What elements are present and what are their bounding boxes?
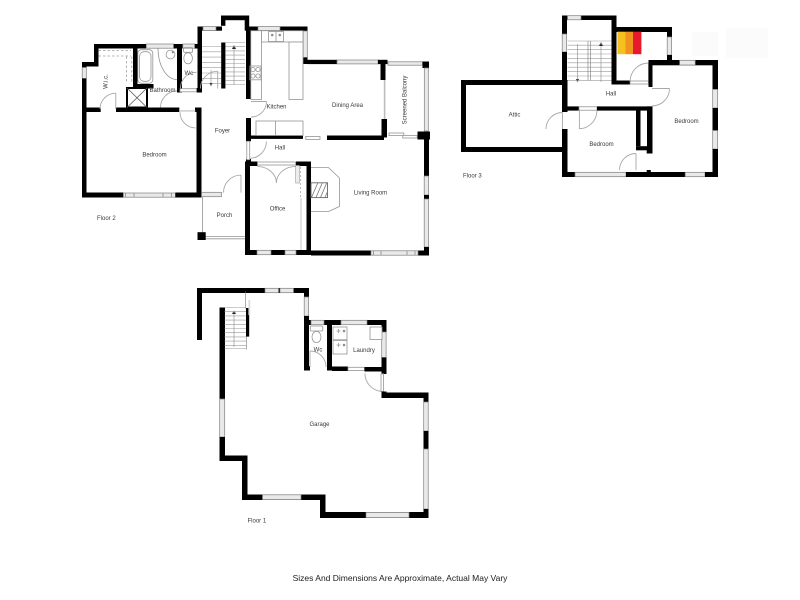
svg-text:Sizes And Dimensions Are Appro: Sizes And Dimensions Are Approximate, Ac… xyxy=(293,573,509,583)
svg-text:Living Room: Living Room xyxy=(354,191,387,197)
svg-text:Floor 2: Floor 2 xyxy=(97,216,116,222)
svg-text:Dining Area: Dining Area xyxy=(332,103,364,109)
svg-text:Office: Office xyxy=(270,207,286,213)
svg-text:Wc: Wc xyxy=(314,348,323,354)
svg-text:Wc: Wc xyxy=(184,71,193,77)
svg-text:Hall: Hall xyxy=(275,146,285,152)
svg-text:Bedroom: Bedroom xyxy=(674,119,698,125)
svg-text:Floor 3: Floor 3 xyxy=(463,174,482,180)
svg-text:Garage: Garage xyxy=(309,422,330,428)
svg-text:Bedroom: Bedroom xyxy=(589,142,613,148)
svg-text:Foyer: Foyer xyxy=(215,129,230,135)
svg-text:Screened Balcony: Screened Balcony xyxy=(403,76,409,125)
svg-text:Kitchen: Kitchen xyxy=(266,105,286,111)
svg-text:W.i.c.: W.i.c. xyxy=(104,74,110,89)
svg-text:Laundry: Laundry xyxy=(353,348,375,354)
svg-text:Hall: Hall xyxy=(606,92,616,98)
svg-text:Porch: Porch xyxy=(217,213,233,219)
svg-text:Bathroom: Bathroom xyxy=(149,88,175,94)
svg-text:Floor 1: Floor 1 xyxy=(248,519,267,525)
svg-text:Attic: Attic xyxy=(509,113,521,119)
svg-text:Bedroom: Bedroom xyxy=(142,153,166,159)
